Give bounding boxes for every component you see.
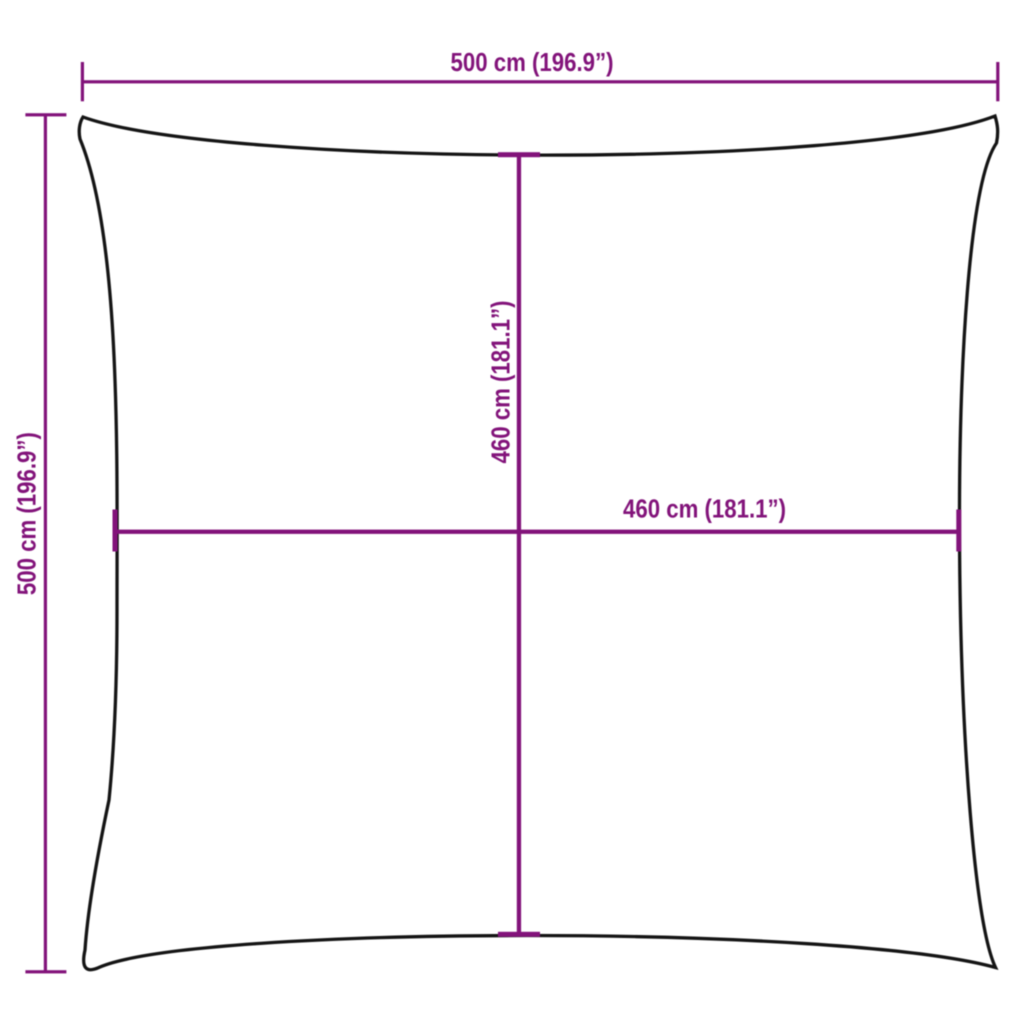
svg-text:460 cm (181.1”): 460 cm (181.1”) — [623, 494, 786, 524]
svg-text:500 cm (196.9”): 500 cm (196.9”) — [451, 47, 614, 77]
svg-text:460 cm (181.1”): 460 cm (181.1”) — [486, 301, 516, 464]
svg-text:500 cm (196.9”): 500 cm (196.9”) — [12, 432, 42, 595]
